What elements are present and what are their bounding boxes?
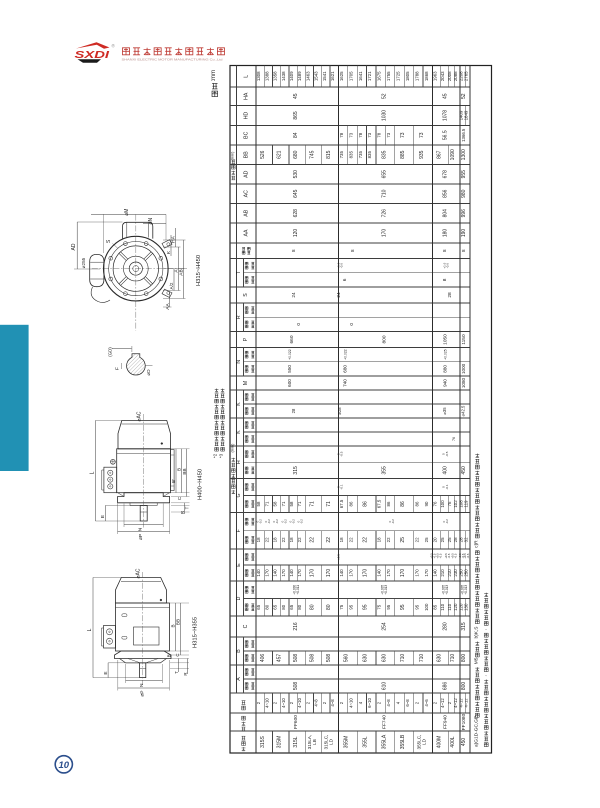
svg-text:80: 80	[281, 604, 286, 609]
svg-text:508: 508	[326, 654, 332, 663]
svg-text:+0.013: +0.013	[445, 585, 449, 595]
svg-text:315: 315	[461, 622, 467, 631]
svg-text:710: 710	[400, 654, 406, 663]
svg-text:75: 75	[339, 604, 344, 609]
svg-text:SHANXI ELECTRIC MOTOR MANUFACT: SHANXI ELECTRIC MOTOR MANUFACTURING Co.,…	[122, 58, 223, 62]
svg-text:508: 508	[310, 654, 316, 663]
svg-text:450: 450	[461, 738, 467, 747]
svg-text:⌀AC: ⌀AC	[137, 411, 143, 421]
svg-text:250: 250	[464, 569, 469, 577]
svg-text:AD: AD	[71, 243, 77, 250]
svg-text:45: 45	[293, 93, 299, 99]
svg-text:22: 22	[326, 537, 332, 543]
svg-text:4~6: 4~6	[424, 699, 429, 707]
svg-text:75: 75	[377, 604, 382, 609]
svg-text:2: 2	[322, 701, 327, 704]
svg-text:22: 22	[310, 537, 316, 543]
svg-text:D: D	[236, 596, 242, 600]
svg-text:210: 210	[447, 569, 452, 577]
svg-text:4~10: 4~10	[348, 698, 353, 708]
svg-text:856: 856	[442, 189, 448, 198]
svg-text:H315~H355: H315~H355	[192, 617, 198, 648]
svg-text:170: 170	[310, 569, 316, 578]
svg-text:73: 73	[348, 132, 353, 137]
svg-text:AB: AB	[179, 269, 185, 275]
svg-text:28: 28	[447, 292, 453, 298]
svg-text:76: 76	[452, 437, 456, 441]
svg-text:85: 85	[432, 604, 437, 609]
svg-text:1409: 1409	[289, 71, 294, 81]
svg-text:-0.6: -0.6	[340, 263, 344, 269]
svg-text:L: L	[87, 628, 93, 631]
svg-text:867: 867	[436, 150, 442, 159]
svg-text:c)R: c)R	[473, 540, 479, 548]
svg-text:-0.5: -0.5	[466, 553, 470, 558]
svg-text:BC: BC	[244, 131, 250, 138]
svg-text:N: N	[138, 527, 144, 531]
svg-text:1080: 1080	[461, 377, 466, 388]
svg-text:710: 710	[450, 654, 456, 663]
svg-text:600: 600	[287, 379, 292, 387]
svg-text:996: 996	[461, 209, 467, 218]
svg-text:8: 8	[461, 249, 466, 252]
svg-text:230: 230	[453, 569, 458, 577]
svg-text:SXDI: SXDI	[75, 49, 111, 61]
svg-text:835: 835	[367, 151, 372, 159]
svg-text:71: 71	[297, 501, 302, 506]
svg-text:⌀35: ⌀35	[442, 407, 447, 415]
svg-text:N: N	[139, 683, 145, 687]
svg-text:630: 630	[381, 654, 387, 663]
svg-text:80: 80	[326, 604, 332, 610]
svg-text:R: R	[180, 510, 185, 514]
svg-text:1868: 1868	[424, 71, 429, 81]
svg-text:86: 86	[348, 501, 353, 506]
svg-text:76: 76	[447, 501, 452, 506]
svg-text:M5: M5	[473, 657, 479, 664]
svg-text:940: 940	[442, 379, 447, 387]
svg-text:*3: *3	[219, 453, 224, 458]
svg-text:6~8: 6~8	[405, 699, 410, 707]
svg-text:AA: AA	[244, 229, 250, 236]
svg-text:71: 71	[264, 501, 269, 506]
svg-text:R: R	[236, 315, 242, 319]
svg-text:BB: BB	[182, 468, 187, 474]
svg-text:B′: B′	[167, 653, 172, 657]
svg-text:710: 710	[381, 189, 387, 198]
svg-text:800: 800	[381, 335, 387, 343]
svg-text:2043: 2043	[440, 71, 445, 81]
svg-text:R: R	[183, 672, 188, 675]
svg-text:K: K	[236, 402, 242, 406]
svg-text:L: L	[244, 75, 250, 78]
svg-text:315: 315	[293, 466, 299, 475]
svg-text:100: 100	[424, 603, 429, 611]
svg-text:22: 22	[363, 537, 369, 543]
svg-text:95: 95	[414, 604, 419, 609]
svg-text:1366.5: 1366.5	[461, 128, 466, 142]
svg-text:254: 254	[381, 622, 387, 631]
svg-text:170: 170	[381, 229, 387, 238]
svg-text:0: 0	[296, 323, 301, 326]
svg-text:80: 80	[297, 604, 302, 609]
svg-text:LD: LD	[422, 738, 427, 745]
svg-text:1308: 1308	[256, 71, 261, 81]
svg-text:1621: 1621	[330, 71, 335, 81]
svg-text:⌀N: ⌀N	[148, 218, 154, 225]
svg-text:LB: LB	[312, 739, 317, 745]
svg-text:95: 95	[400, 604, 406, 610]
svg-text:1388: 1388	[264, 71, 269, 81]
svg-text:400M: 400M	[436, 736, 442, 749]
svg-text:28: 28	[291, 408, 296, 413]
svg-text:73: 73	[367, 132, 372, 137]
svg-text:735: 735	[339, 151, 344, 159]
svg-text:140: 140	[432, 569, 437, 577]
svg-text:120: 120	[293, 229, 299, 238]
svg-text:76: 76	[432, 501, 437, 506]
svg-text:560: 560	[344, 654, 350, 663]
svg-text:FF940: FF940	[442, 715, 448, 729]
svg-text:630: 630	[363, 654, 369, 663]
svg-text:*2: *2	[213, 453, 218, 458]
svg-text:HA: HA	[244, 92, 250, 100]
svg-text:+0.013: +0.013	[464, 585, 468, 595]
svg-text:S: S	[243, 293, 249, 297]
svg-text:56.5: 56.5	[442, 130, 448, 140]
svg-text:C: C	[243, 624, 249, 628]
svg-text:G: G	[236, 493, 242, 497]
svg-text:170: 170	[400, 569, 406, 578]
svg-text:400: 400	[442, 466, 448, 475]
svg-text:HD: HD	[244, 112, 250, 120]
svg-text:140: 140	[339, 569, 344, 577]
svg-text:65: 65	[273, 604, 278, 609]
svg-text:110: 110	[447, 603, 452, 611]
svg-text:⌀P: ⌀P	[139, 691, 145, 697]
svg-text:18: 18	[339, 537, 344, 542]
svg-text:130: 130	[464, 603, 469, 611]
svg-text:800: 800	[461, 654, 467, 663]
svg-text:1805: 1805	[405, 71, 410, 81]
svg-text:84: 84	[293, 132, 299, 138]
svg-text:58: 58	[273, 501, 278, 506]
svg-text:815: 815	[326, 150, 332, 159]
svg-text:-0.2: -0.2	[267, 519, 271, 524]
svg-text:1489: 1489	[297, 71, 302, 81]
svg-text:355M: 355M	[344, 736, 350, 749]
svg-text:1358: 1358	[273, 71, 278, 81]
svg-text:T: T	[174, 671, 179, 674]
svg-text:28: 28	[453, 537, 458, 542]
svg-text:4~12: 4~12	[440, 698, 445, 708]
svg-text:F: F	[115, 367, 121, 370]
svg-text:120: 120	[453, 603, 458, 611]
svg-text:86: 86	[363, 501, 369, 507]
svg-text:-0.1: -0.1	[340, 484, 344, 490]
svg-text:22: 22	[414, 537, 419, 542]
svg-text:-0.5: -0.5	[447, 553, 451, 558]
svg-text:-0.1: -0.1	[445, 484, 449, 490]
svg-text::mm: :mm	[211, 70, 217, 82]
svg-text:95: 95	[348, 604, 353, 609]
svg-text:,: ,	[483, 675, 488, 676]
svg-text:22: 22	[348, 537, 353, 542]
svg-text:530: 530	[293, 170, 299, 179]
svg-text:216: 216	[293, 622, 299, 631]
svg-text:+0.025: +0.025	[443, 349, 447, 360]
svg-text:508: 508	[293, 682, 299, 691]
svg-text:F: F	[236, 529, 242, 532]
svg-text:AA: AA	[165, 303, 171, 310]
svg-text:78: 78	[377, 132, 382, 137]
svg-text:⌀D: ⌀D	[146, 369, 151, 376]
svg-text:71: 71	[326, 501, 332, 507]
svg-text:22: 22	[264, 537, 269, 542]
svg-text:355LA: 355LA	[381, 734, 387, 749]
svg-text:680: 680	[343, 365, 348, 373]
svg-text:⌀AC: ⌀AC	[136, 568, 142, 578]
svg-text:686: 686	[442, 682, 448, 691]
svg-text:C: C	[177, 496, 182, 500]
svg-text:1675: 1675	[377, 71, 382, 81]
svg-text:⌀28: ⌀28	[337, 407, 342, 415]
svg-text:M: M	[243, 381, 249, 385]
svg-text:1963: 1963	[432, 71, 437, 81]
svg-text:170: 170	[326, 569, 332, 578]
svg-text:-0.2: -0.2	[292, 519, 296, 524]
svg-text:(mm): (mm)	[230, 151, 234, 161]
svg-text:210: 210	[440, 569, 445, 577]
svg-text:L: L	[90, 471, 96, 474]
svg-text:170: 170	[297, 569, 302, 577]
svg-text:H315~H450: H315~H450	[196, 255, 202, 286]
svg-text:80: 80	[310, 604, 316, 610]
svg-text:22: 22	[386, 537, 391, 542]
svg-text:b)K,S: b)K,S	[473, 627, 479, 639]
svg-text:2765: 2765	[464, 71, 469, 81]
svg-text:90: 90	[424, 501, 429, 506]
svg-text:24: 24	[291, 292, 297, 298]
svg-text:⌀255: ⌀255	[81, 257, 86, 268]
svg-text:4~8: 4~8	[330, 699, 335, 707]
svg-text:(mm): (mm)	[230, 443, 234, 453]
svg-text:0: 0	[349, 323, 354, 326]
svg-text:140: 140	[273, 569, 278, 577]
svg-text:980: 980	[461, 189, 467, 198]
svg-text:1625: 1625	[339, 71, 344, 81]
svg-text:8: 8	[442, 249, 447, 252]
svg-text:170: 170	[424, 569, 429, 577]
svg-text:110: 110	[440, 603, 445, 611]
svg-text:-0.6: -0.6	[446, 263, 450, 269]
svg-text:457: 457	[277, 654, 283, 663]
svg-text:-0.5: -0.5	[340, 451, 344, 457]
svg-text:1078: 1078	[442, 110, 448, 121]
svg-text:-0.2: -0.2	[445, 519, 449, 524]
svg-text:2: 2	[432, 701, 437, 704]
svg-text:1543: 1543	[314, 71, 319, 81]
svg-text:65: 65	[289, 604, 294, 609]
svg-text:655: 655	[381, 170, 387, 179]
svg-text:10: 10	[59, 760, 70, 771]
svg-text:400L: 400L	[450, 736, 456, 747]
svg-text:45: 45	[442, 93, 448, 99]
svg-text:660: 660	[289, 335, 295, 343]
svg-text:2088: 2088	[453, 71, 458, 81]
svg-text:AB: AB	[244, 209, 250, 216]
svg-text:71: 71	[281, 501, 286, 506]
svg-text:+0.022: +0.022	[288, 349, 292, 360]
svg-text:628: 628	[293, 209, 299, 218]
svg-text:170: 170	[348, 569, 353, 577]
svg-text:6: 6	[342, 278, 348, 281]
svg-text:78: 78	[339, 132, 344, 137]
svg-text:1300: 1300	[461, 149, 467, 160]
svg-text:935: 935	[419, 150, 425, 159]
svg-text:±0.5: ±0.5	[337, 554, 341, 560]
svg-text:1541: 1541	[322, 71, 327, 81]
svg-text:65: 65	[256, 604, 261, 609]
svg-text:AD: AD	[244, 170, 250, 177]
svg-text:18: 18	[256, 537, 261, 542]
svg-text:+0.013: +0.013	[384, 585, 388, 595]
svg-text:73: 73	[400, 132, 406, 138]
svg-text:735: 735	[358, 151, 363, 159]
svg-text:4~12: 4~12	[464, 698, 469, 708]
svg-text:25: 25	[400, 537, 406, 543]
svg-text:73: 73	[419, 132, 425, 138]
svg-text:170: 170	[414, 569, 419, 577]
svg-text:LD: LD	[329, 738, 334, 745]
svg-text:630: 630	[436, 654, 442, 663]
svg-text:2: 2	[305, 701, 310, 704]
svg-text:K: K	[236, 430, 242, 434]
svg-text:FF1080: FF1080	[461, 713, 467, 730]
svg-text:280: 280	[442, 622, 448, 631]
svg-text:HA: HA	[171, 235, 177, 242]
svg-text:355L: 355L	[363, 736, 369, 747]
svg-text:24: 24	[336, 292, 342, 298]
svg-text:4~12: 4~12	[453, 698, 458, 708]
svg-text:-0.2: -0.2	[391, 519, 395, 524]
svg-text:1788: 1788	[414, 71, 419, 81]
svg-text:190: 190	[461, 229, 467, 238]
svg-text:835: 835	[348, 151, 353, 159]
svg-text:22: 22	[281, 537, 286, 542]
svg-text:S: S	[106, 239, 112, 243]
svg-text:E: E	[236, 563, 242, 567]
svg-text:1090: 1090	[450, 149, 456, 160]
svg-text:N: N	[236, 360, 242, 364]
svg-text:6~10: 6~10	[367, 698, 372, 708]
svg-text:1641: 1641	[358, 71, 363, 81]
svg-text:71: 71	[310, 501, 316, 507]
svg-text:4~10: 4~10	[281, 698, 286, 708]
svg-text:315S: 315S	[260, 736, 266, 748]
svg-text:610: 610	[381, 682, 387, 691]
svg-text:4: 4	[396, 701, 401, 704]
svg-text:170: 170	[386, 569, 391, 577]
svg-text:T: T	[185, 506, 190, 509]
svg-text:4~8: 4~8	[314, 699, 319, 707]
svg-text:835: 835	[381, 150, 387, 159]
svg-text:726: 726	[381, 209, 387, 218]
svg-text:140: 140	[256, 569, 261, 577]
svg-text:140: 140	[289, 569, 294, 577]
svg-text:67.5: 67.5	[377, 499, 382, 508]
svg-text:95: 95	[363, 604, 369, 610]
svg-text:8: 8	[350, 249, 355, 252]
svg-text:H400~H450: H400~H450	[197, 469, 203, 500]
svg-text:(GD): (GD)	[108, 347, 113, 357]
svg-text:25: 25	[440, 537, 445, 542]
svg-text:a)G1D-GC,GE: a)G1D-GC,GE	[473, 716, 479, 747]
svg-text:⌀M: ⌀M	[124, 209, 130, 216]
svg-text:621: 621	[277, 150, 283, 159]
svg-text:800: 800	[461, 682, 467, 691]
svg-text:885: 885	[400, 150, 406, 159]
svg-text:1463: 1463	[305, 71, 310, 81]
svg-text:H: H	[236, 460, 242, 464]
svg-text:4: 4	[358, 701, 363, 704]
svg-text:8: 8	[291, 249, 296, 252]
svg-text:710: 710	[419, 654, 425, 663]
svg-text:-0.5: -0.5	[453, 553, 457, 558]
svg-text:®: ®	[112, 43, 116, 49]
svg-text:955: 955	[461, 170, 467, 179]
svg-text:2: 2	[377, 701, 382, 704]
svg-text:-0.2: -0.2	[283, 519, 287, 524]
svg-text:880: 880	[442, 365, 447, 373]
svg-text:32: 32	[464, 537, 469, 542]
svg-text:315M: 315M	[277, 736, 283, 749]
svg-text:-0.5: -0.5	[445, 451, 449, 457]
svg-text:4~10: 4~10	[264, 698, 269, 708]
svg-text:170: 170	[281, 569, 286, 577]
svg-text:18: 18	[289, 537, 294, 542]
svg-text:78: 78	[358, 132, 363, 137]
svg-text:170: 170	[363, 569, 369, 578]
svg-text:1755: 1755	[386, 71, 391, 81]
svg-text:P: P	[243, 337, 249, 341]
svg-text:80: 80	[264, 604, 269, 609]
svg-text:FF600: FF600	[293, 715, 299, 729]
svg-text:804: 804	[442, 209, 448, 218]
svg-text:865: 865	[293, 111, 299, 120]
svg-text:E: E	[100, 515, 106, 518]
svg-text:119: 119	[464, 500, 469, 508]
svg-text:1705: 1705	[348, 71, 353, 81]
svg-text:AC: AC	[244, 190, 250, 197]
svg-text:1030: 1030	[381, 110, 387, 121]
svg-text:BB: BB	[244, 151, 250, 158]
svg-text:86: 86	[386, 501, 391, 506]
svg-text:22: 22	[297, 537, 302, 542]
svg-text:1725: 1725	[396, 71, 401, 81]
svg-text:526: 526	[260, 150, 266, 159]
svg-text:-0.2: -0.2	[300, 519, 304, 524]
svg-text:1438: 1438	[281, 71, 286, 81]
svg-text:BB: BB	[176, 619, 181, 625]
svg-text:508: 508	[293, 654, 299, 663]
svg-text:86: 86	[400, 501, 406, 507]
svg-text:2: 2	[289, 701, 294, 704]
svg-text:⌀42.5: ⌀42.5	[461, 405, 466, 416]
svg-text:+0.011: +0.011	[296, 585, 300, 595]
svg-text:20: 20	[432, 537, 437, 542]
svg-text:406: 406	[260, 654, 266, 663]
